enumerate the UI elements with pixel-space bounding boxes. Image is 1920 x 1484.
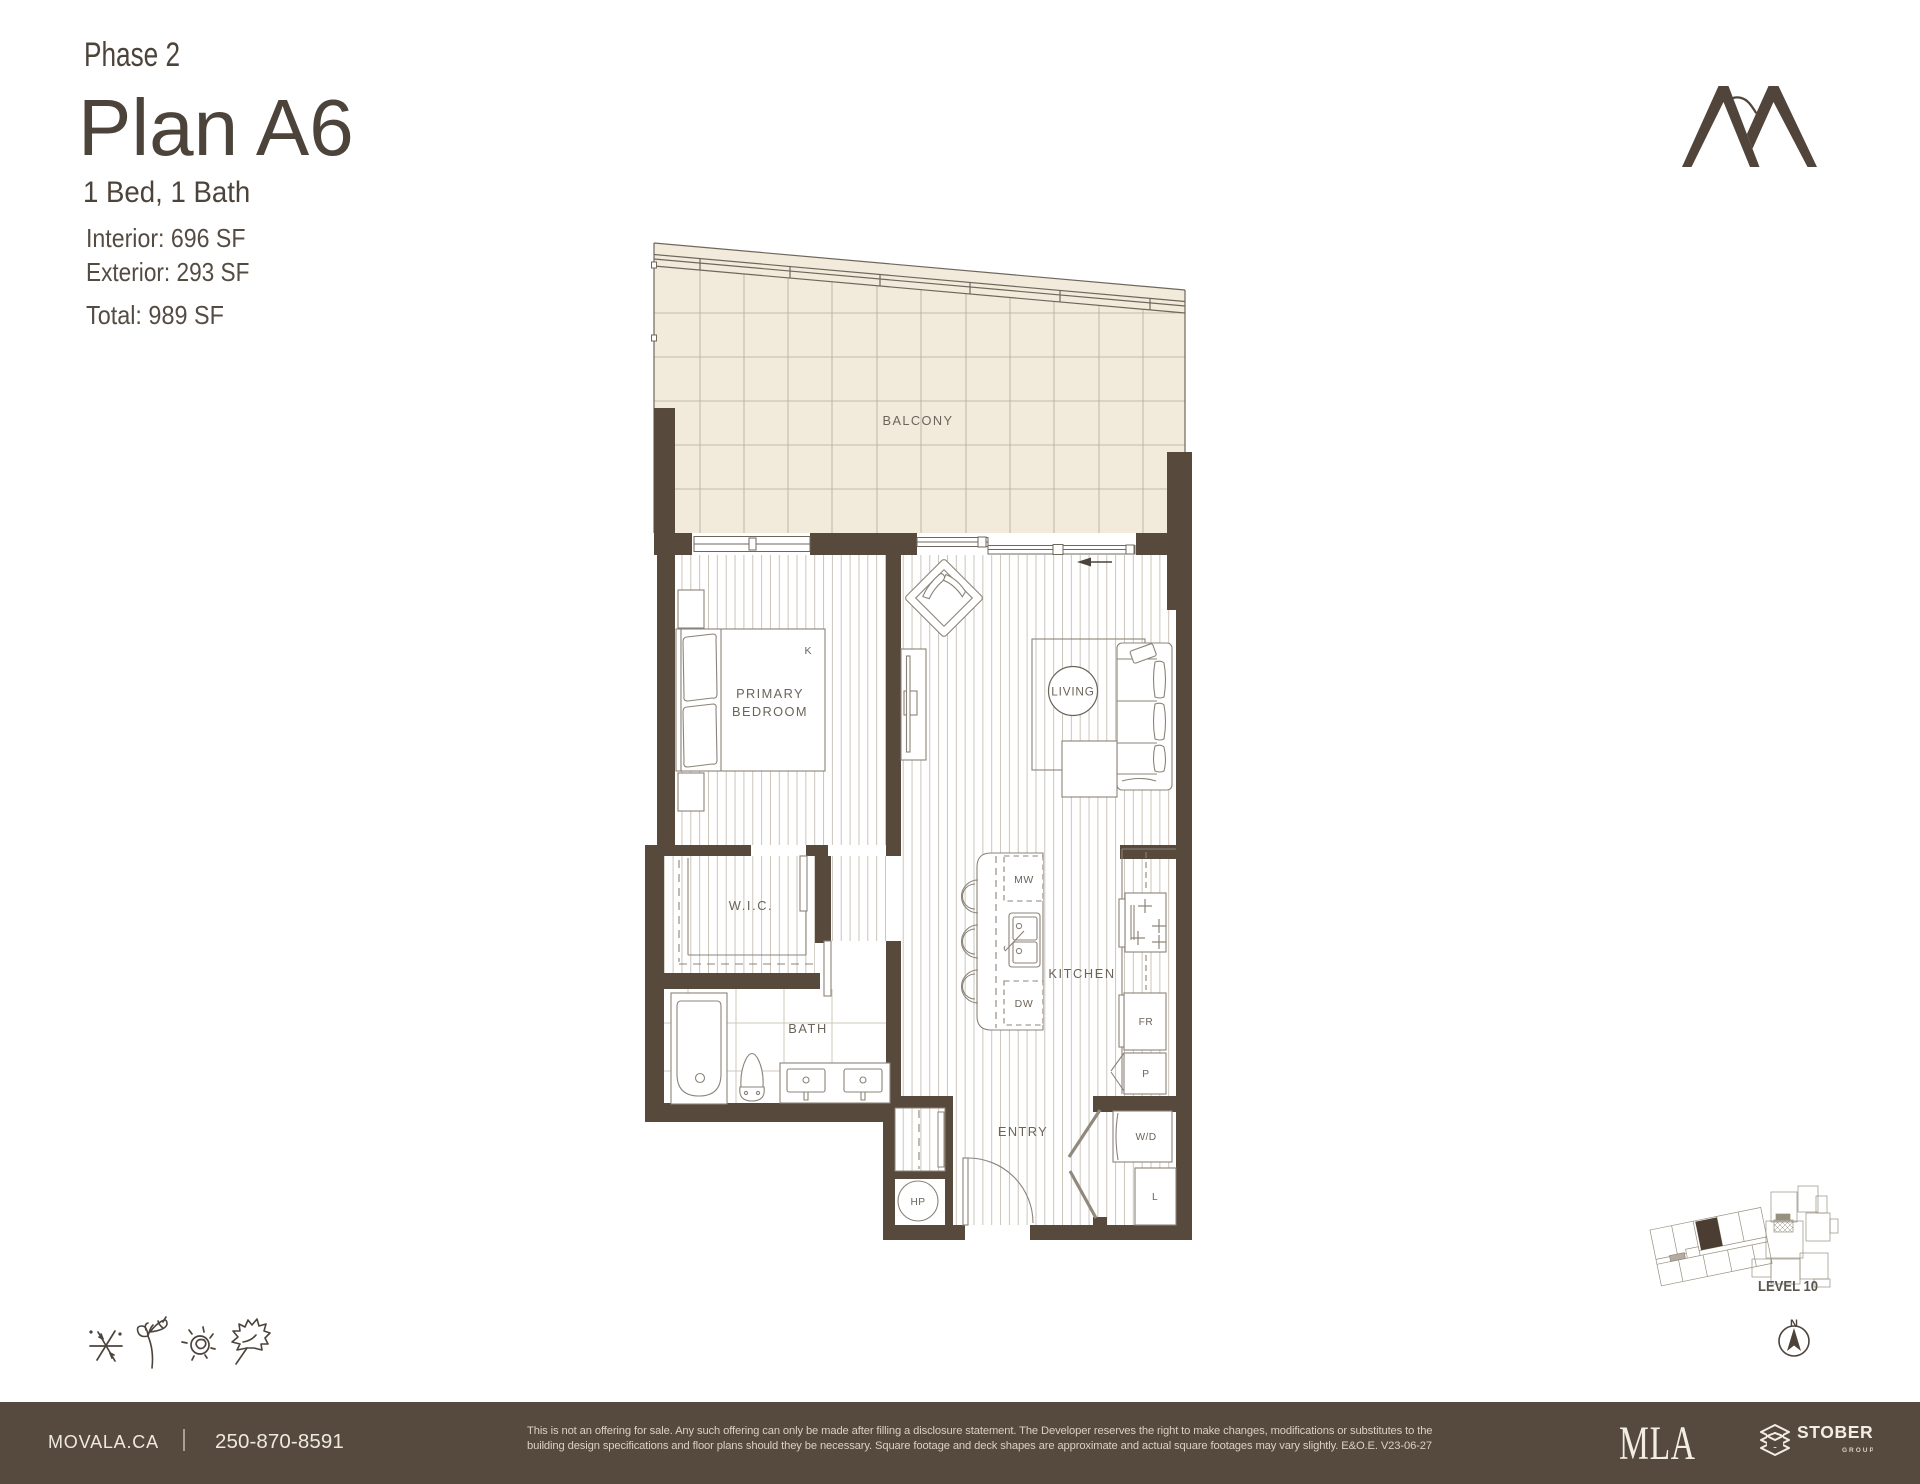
svg-text:HP: HP — [911, 1197, 926, 1208]
svg-text:BATH: BATH — [788, 1021, 828, 1036]
svg-text:W/D: W/D — [1135, 1132, 1156, 1143]
svg-text:MW: MW — [1014, 874, 1034, 886]
svg-text:K: K — [804, 645, 811, 657]
svg-text:DW: DW — [1015, 998, 1034, 1010]
svg-text:ENTRY: ENTRY — [998, 1124, 1048, 1139]
svg-text:LEVEL 10: LEVEL 10 — [1758, 1279, 1818, 1295]
svg-text:L: L — [1152, 1192, 1158, 1203]
svg-text:BALCONY: BALCONY — [883, 413, 954, 428]
svg-text:BEDROOM: BEDROOM — [732, 704, 808, 719]
svg-text:KITCHEN: KITCHEN — [1048, 966, 1115, 981]
svg-text:W.I.C.: W.I.C. — [729, 898, 773, 913]
svg-text:PRIMARY: PRIMARY — [736, 686, 804, 701]
svg-text:P: P — [1142, 1069, 1149, 1080]
svg-text:LIVING: LIVING — [1051, 685, 1094, 699]
svg-text:FR: FR — [1139, 1017, 1154, 1028]
